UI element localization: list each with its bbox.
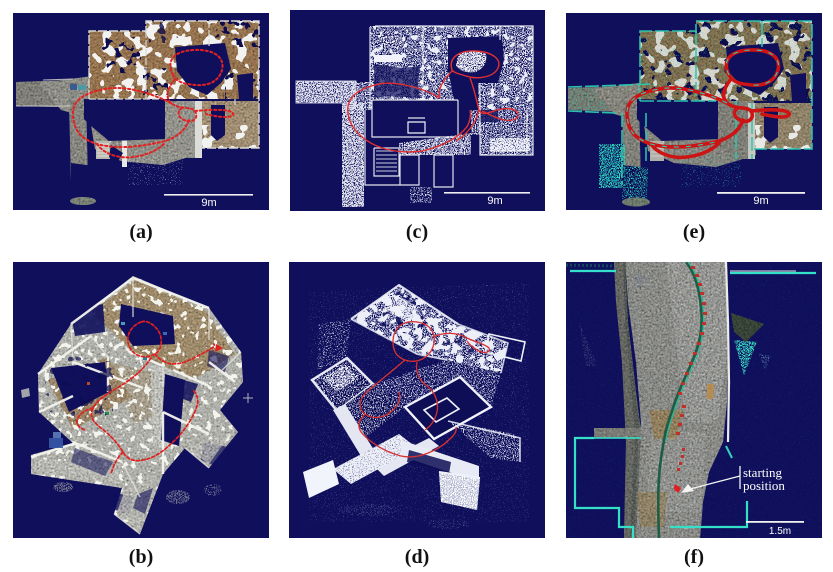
svg-text:9m: 9m: [753, 195, 768, 207]
svg-text:9m: 9m: [487, 195, 502, 207]
svg-text:9m: 9m: [201, 197, 216, 209]
svg-text:1.5m: 1.5m: [769, 526, 791, 537]
svg-text:position: position: [743, 478, 785, 493]
